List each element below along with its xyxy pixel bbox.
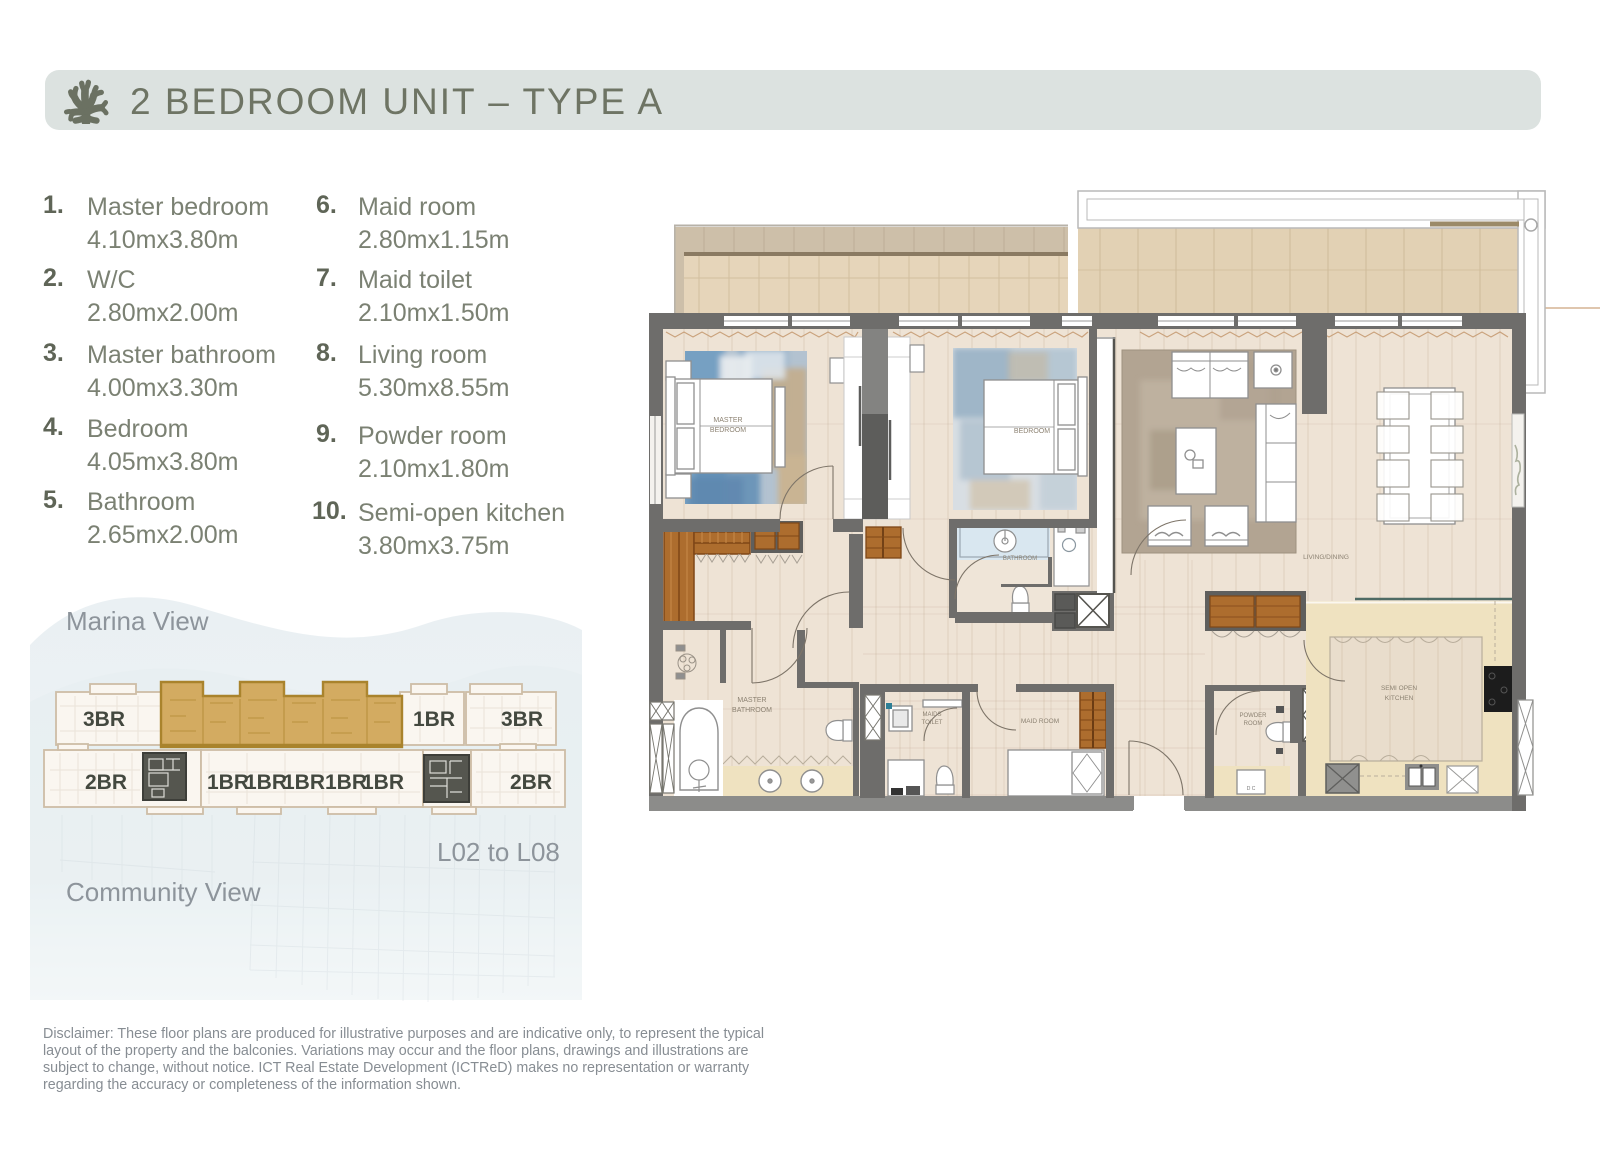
svg-text:MASTER: MASTER (713, 417, 742, 424)
svg-text:MASTER: MASTER (737, 697, 766, 704)
svg-text:MAID ROOM: MAID ROOM (1021, 718, 1059, 725)
svg-text:D C: D C (1247, 786, 1256, 792)
svg-text:3BR: 3BR (83, 708, 125, 731)
svg-text:LIVING/DINING: LIVING/DINING (1303, 554, 1349, 561)
svg-text:BEDROOM: BEDROOM (710, 427, 746, 434)
svg-text:1BR: 1BR (207, 771, 249, 794)
svg-text:KITCHEN: KITCHEN (1385, 695, 1414, 702)
svg-text:Community View: Community View (66, 877, 261, 907)
svg-text:1BR: 1BR (362, 771, 404, 794)
svg-text:L02 to L08: L02 to L08 (437, 837, 560, 867)
svg-text:Marina View: Marina View (66, 606, 209, 636)
svg-text:ROOM: ROOM (1244, 721, 1263, 727)
svg-text:1BR: 1BR (245, 771, 287, 794)
svg-text:2BR: 2BR (510, 771, 552, 794)
svg-text:1BR: 1BR (413, 708, 455, 731)
svg-text:BATHROOM: BATHROOM (1003, 556, 1037, 562)
svg-text:BATHROOM: BATHROOM (732, 707, 772, 714)
svg-text:SEMI OPEN: SEMI OPEN (1381, 685, 1417, 692)
svg-text:BEDROOM: BEDROOM (1014, 428, 1050, 435)
svg-text:TOILET: TOILET (922, 720, 943, 726)
svg-text:1BR: 1BR (325, 771, 367, 794)
svg-text:1BR: 1BR (283, 771, 325, 794)
svg-text:2BR: 2BR (85, 771, 127, 794)
svg-text:3BR: 3BR (501, 708, 543, 731)
svg-text:POWDER: POWDER (1240, 713, 1268, 719)
